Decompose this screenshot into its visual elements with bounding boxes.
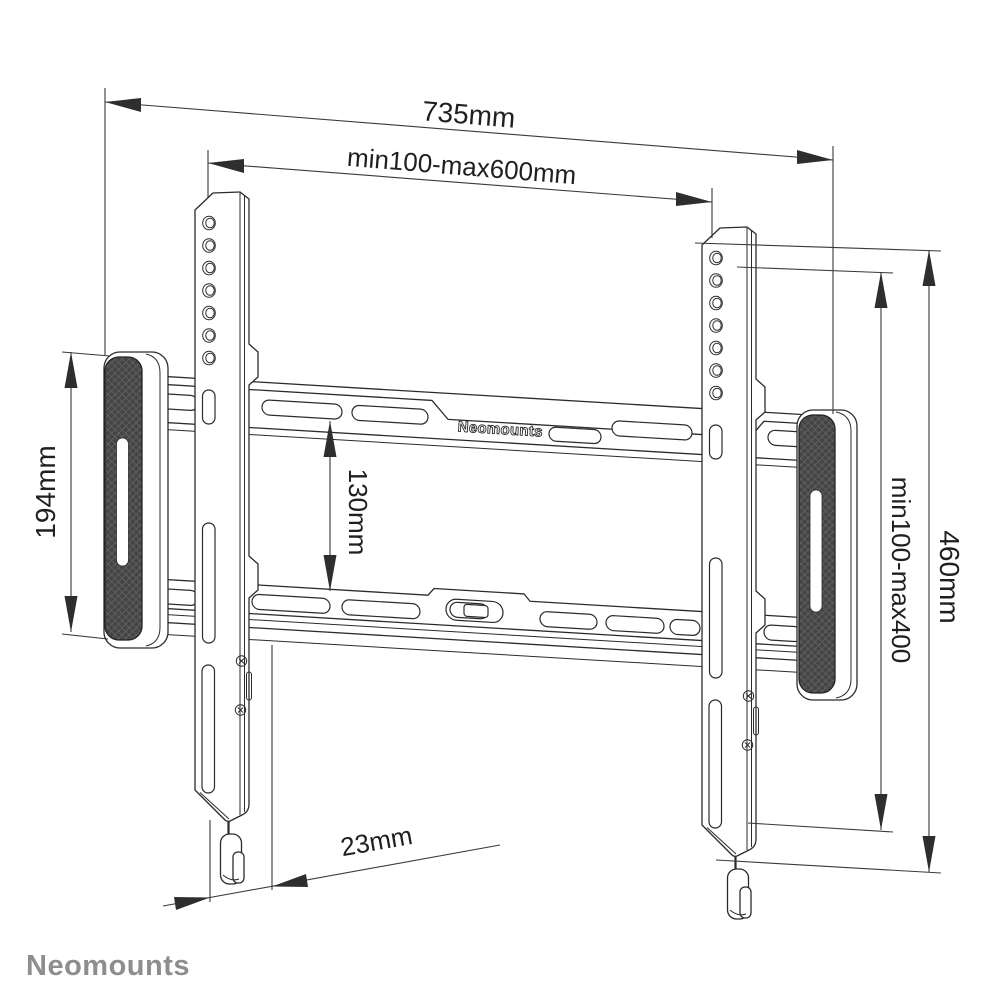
dim-label-rail-gap: 130mm <box>343 469 373 556</box>
dim-label-bracket-height: 460mm <box>934 530 965 623</box>
product-dimension-drawing: Neomounts 735mm min100-max600mm <box>0 0 1004 1004</box>
left-end-cap <box>104 352 168 648</box>
dim-label-vesa-height: min100-max400 <box>886 477 916 663</box>
plate-brand-label: Neomounts <box>457 418 543 440</box>
left-tv-bracket <box>195 192 258 884</box>
dim-pad-height: 194mm <box>30 352 110 639</box>
dim-label-pad-height: 194mm <box>30 445 61 538</box>
footer-brand-logo: Neomounts <box>26 950 190 983</box>
locking-latch <box>446 599 503 623</box>
right-end-cap <box>797 410 857 700</box>
dim-vesa-width: min100-max600mm <box>208 142 712 238</box>
tv-wall-mount-drawing: Neomounts 735mm min100-max600mm <box>0 0 1004 1004</box>
dim-label-depth: 23mm <box>338 820 414 862</box>
right-tv-bracket <box>702 227 765 919</box>
dim-rail-gap: 130mm <box>324 421 374 591</box>
